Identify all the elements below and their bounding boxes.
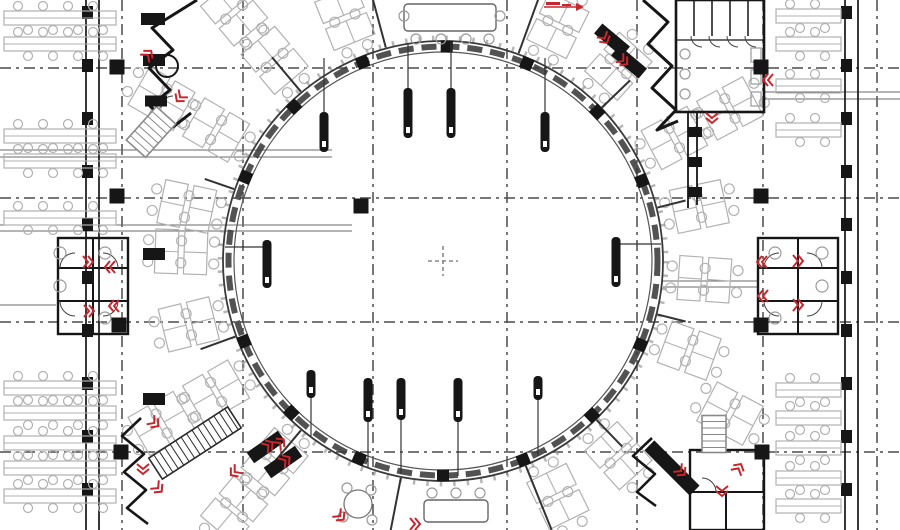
center-crosshair: [428, 246, 458, 276]
columns: [110, 60, 770, 460]
desk-pod: [145, 177, 228, 236]
desk-pod: [521, 0, 594, 69]
desk-pod: [658, 177, 741, 236]
red-revision-mark: [731, 461, 746, 476]
desk-pod: [310, 0, 379, 62]
floor-plan-drawing: [0, 0, 900, 530]
desk-pod: [646, 317, 732, 384]
red-revision-mark: [172, 90, 188, 105]
red-revision-mark: [83, 256, 93, 268]
desk-pod: [147, 294, 231, 355]
stair: [149, 407, 241, 479]
stair: [702, 416, 726, 453]
red-revision-mark: [137, 464, 149, 474]
meeting-tables: [338, 4, 505, 525]
red-revision-mark: [410, 518, 420, 530]
desk-pod: [686, 376, 774, 451]
floor-plan: [0, 0, 900, 530]
red-revision-mark: [150, 480, 166, 496]
desk-pod: [665, 255, 744, 304]
